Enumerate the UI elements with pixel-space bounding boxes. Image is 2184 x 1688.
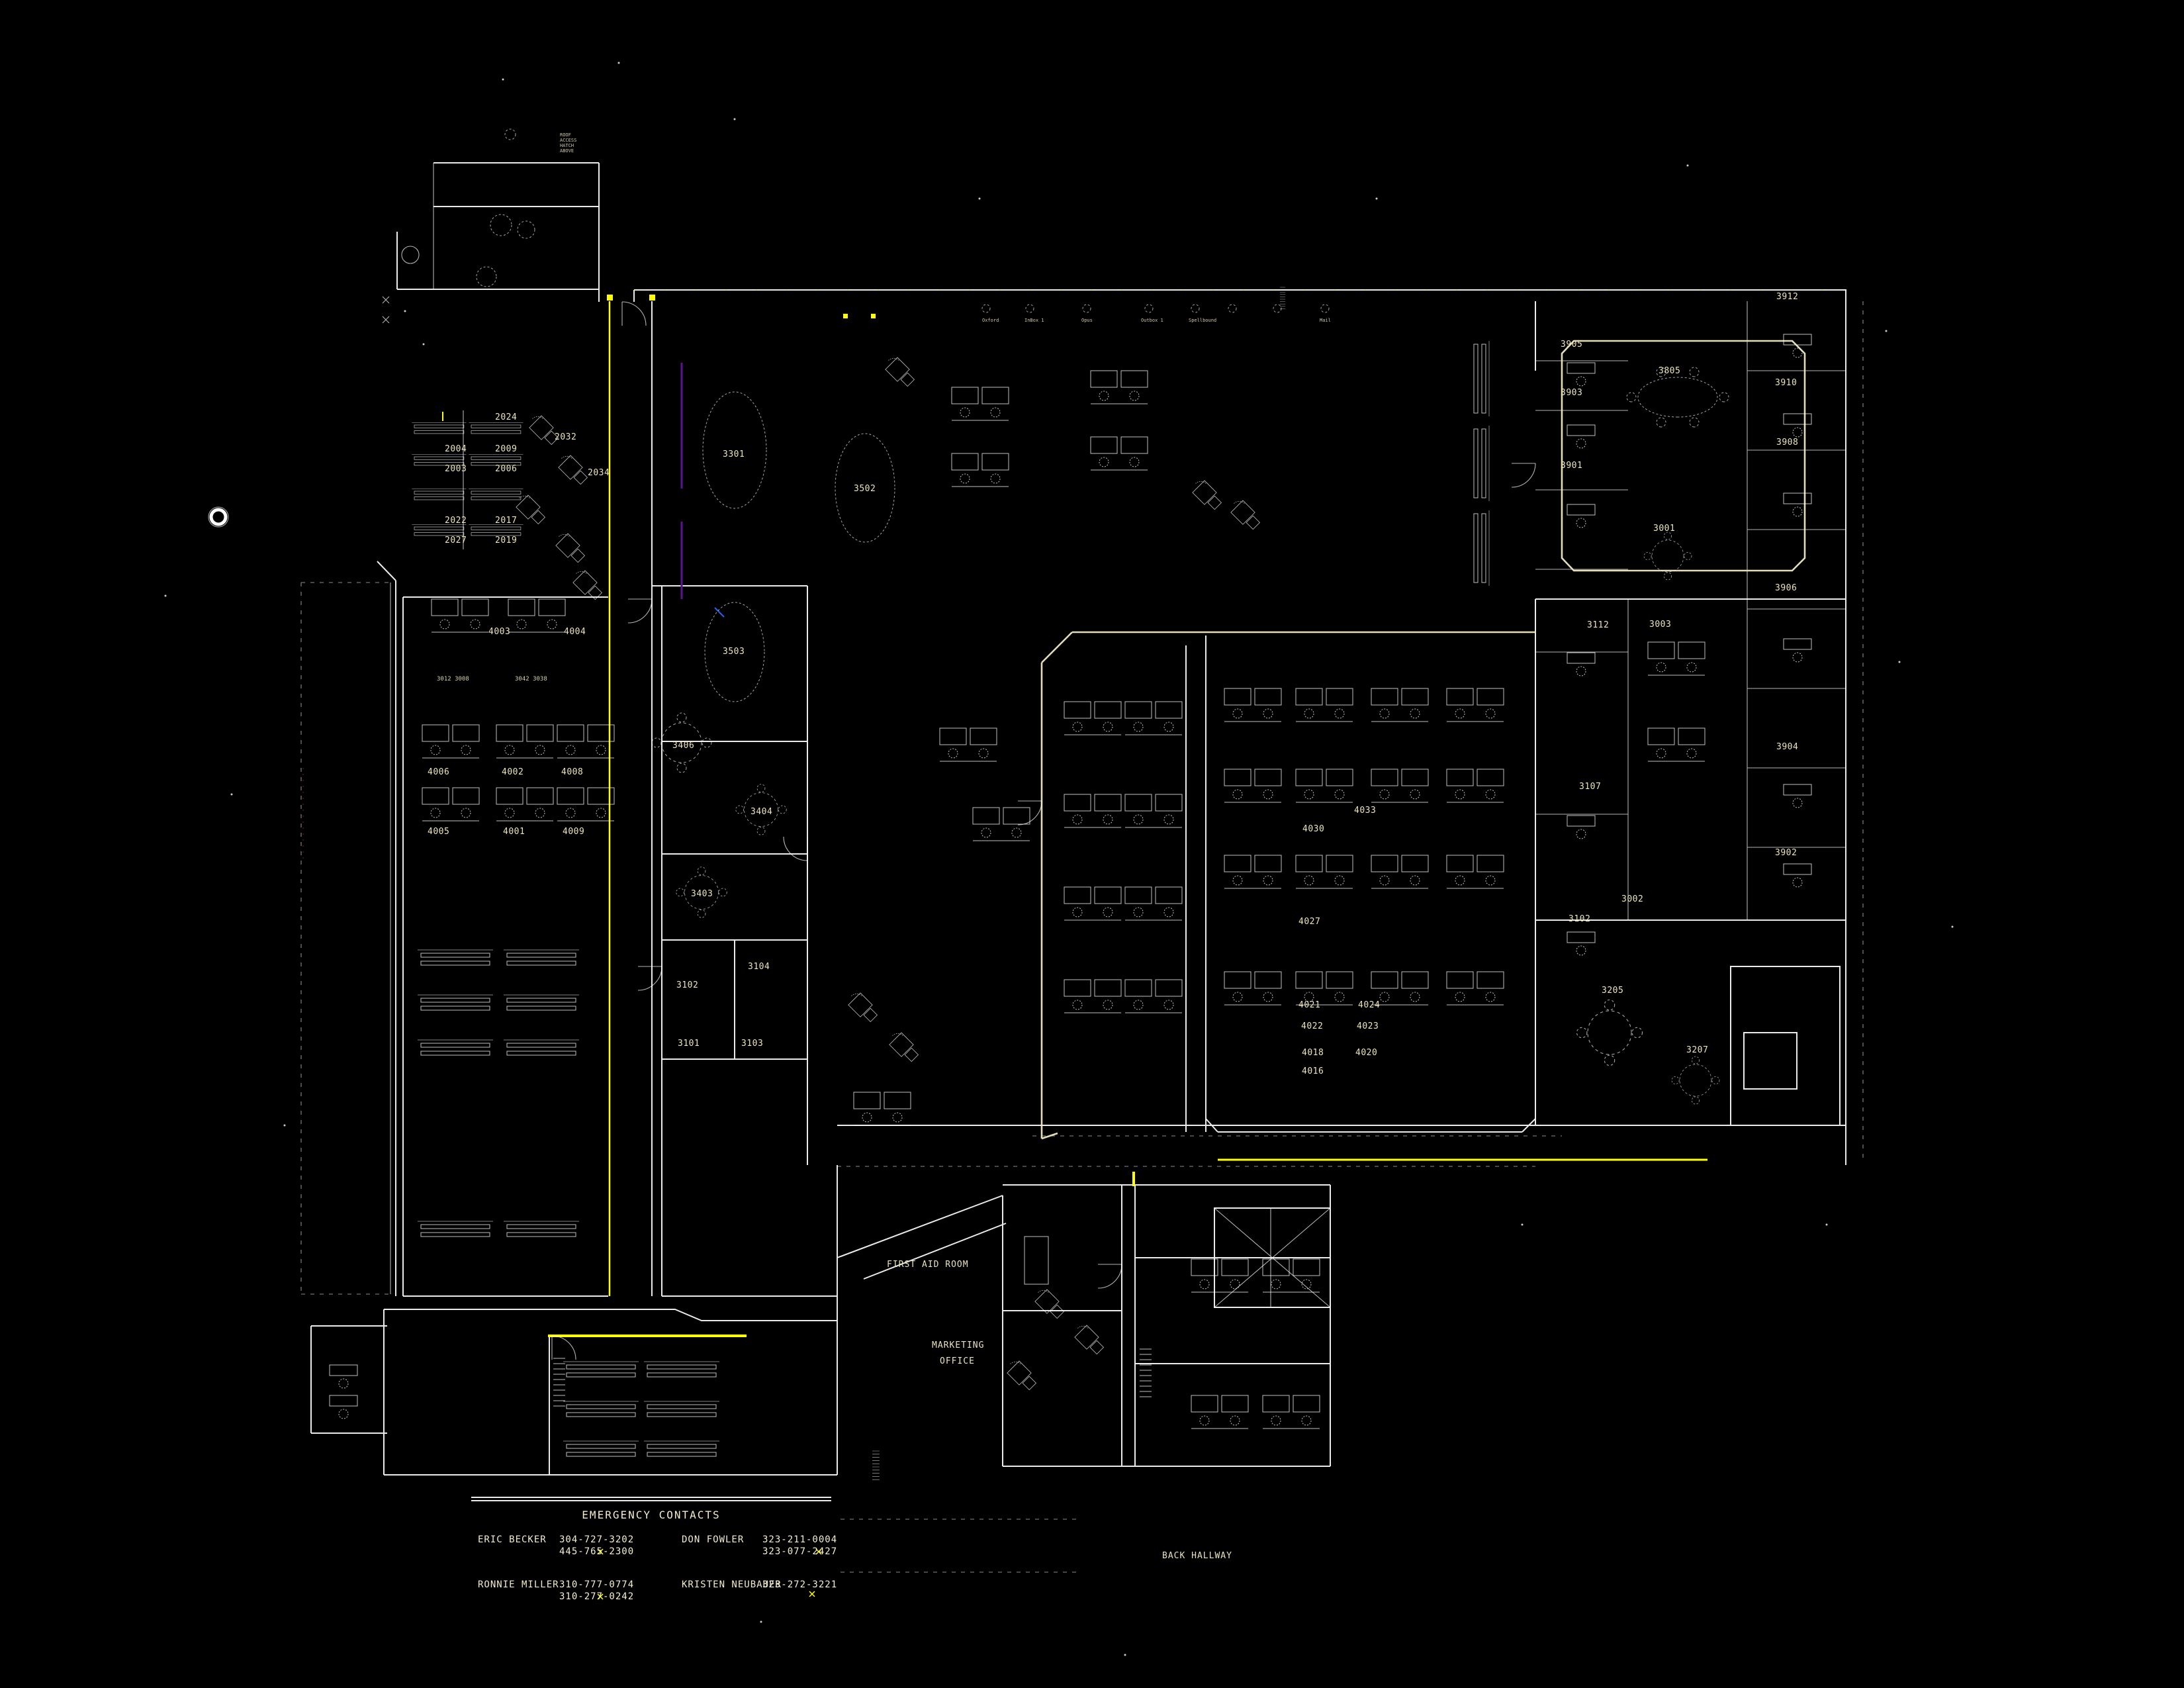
room-label: 3903 xyxy=(1561,388,1582,398)
contact-phone: 323-077-2427 xyxy=(762,1546,837,1557)
room-label: 3112 xyxy=(1587,620,1609,630)
room-label: 2032 xyxy=(555,432,576,442)
contact-name: DON FOWLER xyxy=(682,1534,744,1545)
room-label: 3102 xyxy=(676,980,698,990)
room-label: 3905 xyxy=(1561,340,1582,350)
room-label: 2022 xyxy=(445,516,467,526)
contact-phone: 323-272-3221 xyxy=(762,1579,837,1590)
room-label: 3902 xyxy=(1775,848,1797,858)
room-label: 2034 xyxy=(588,468,610,478)
area-label-marketing-2: OFFICE xyxy=(940,1356,975,1366)
keynote-line: ROOF xyxy=(560,132,571,138)
conference-name: Oxford xyxy=(982,318,999,323)
room-label: 4022 xyxy=(1301,1021,1323,1031)
room-label: 3404 xyxy=(751,807,772,817)
room-label: 3904 xyxy=(1776,742,1798,752)
room-label: 2024 xyxy=(495,412,517,422)
room-label: 3910 xyxy=(1775,378,1797,388)
room-label: 4001 xyxy=(503,827,525,837)
room-label: 4005 xyxy=(428,827,449,837)
conference-name: Outbox 1 xyxy=(1141,318,1163,323)
room-label: 4006 xyxy=(428,767,449,777)
room-label: 4003 xyxy=(488,627,510,637)
room-label: 3003 xyxy=(1649,620,1671,630)
room-label: 3205 xyxy=(1602,986,1623,996)
room-label: 3002 xyxy=(1621,894,1643,904)
room-label: 3104 xyxy=(748,962,770,972)
contacts-title: EMERGENCY CONTACTS xyxy=(582,1509,720,1521)
conference-name: Mail xyxy=(1320,318,1331,323)
drawing-background xyxy=(0,0,2184,1688)
room-label: 4024 xyxy=(1358,1000,1380,1010)
room-label: 3101 xyxy=(678,1039,700,1049)
room-label: 3908 xyxy=(1776,438,1798,447)
room-label: 4030 xyxy=(1302,824,1324,834)
room-label: 3102 xyxy=(1569,914,1590,924)
room-label: 4009 xyxy=(563,827,584,837)
room-label: 3107 xyxy=(1579,782,1601,792)
conference-name: Opus xyxy=(1081,318,1093,323)
room-label: 4008 xyxy=(561,767,583,777)
room-label: 3912 xyxy=(1776,292,1798,302)
room-label: 3502 xyxy=(854,484,876,494)
area-label-marketing-1: MARKETING xyxy=(932,1340,984,1350)
contact-name: ERIC BECKER xyxy=(478,1534,547,1545)
desk-label: 3012 3008 xyxy=(437,676,469,682)
room-label: 4002 xyxy=(502,767,523,777)
room-label: 2019 xyxy=(495,536,517,545)
room-label: 3001 xyxy=(1653,524,1675,534)
contact-phone: 310-777-0774 xyxy=(559,1579,634,1590)
floor-plan-canvas: 2004 2003 2022 2027 2024 2009 2006 2017 … xyxy=(0,0,2184,1688)
contact-phone: 445-765-2300 xyxy=(559,1546,634,1557)
room-label: 4004 xyxy=(564,627,586,637)
room-label: 3406 xyxy=(672,741,694,751)
room-label: 3805 xyxy=(1659,366,1680,376)
floor-plan-stage: 2004 2003 2022 2027 2024 2009 2006 2017 … xyxy=(0,0,2184,1688)
keynote-line: ACCESS xyxy=(560,138,576,143)
conference-name: Spellbound xyxy=(1189,318,1216,323)
room-label: 2027 xyxy=(445,536,467,545)
room-label: 3207 xyxy=(1686,1045,1708,1055)
room-label: 4027 xyxy=(1298,917,1320,927)
room-label: 4021 xyxy=(1298,1000,1320,1010)
conference-name: InBox 1 xyxy=(1024,318,1044,323)
room-label: 4018 xyxy=(1302,1048,1324,1058)
room-label: 4033 xyxy=(1354,806,1376,816)
room-label: 3103 xyxy=(741,1039,763,1049)
contact-phone: 323-211-0004 xyxy=(762,1534,837,1545)
room-label: 2003 xyxy=(445,464,467,474)
room-label: 4020 xyxy=(1355,1048,1377,1058)
room-label: 3503 xyxy=(723,647,745,657)
area-label-back-hallway: BACK HALLWAY xyxy=(1162,1551,1232,1561)
room-label: 4023 xyxy=(1357,1021,1379,1031)
room-label: 3403 xyxy=(691,889,713,899)
room-label: 4016 xyxy=(1302,1066,1324,1076)
contact-phone: 310-277-0242 xyxy=(559,1591,634,1602)
room-label: 2006 xyxy=(495,464,517,474)
room-label: 3301 xyxy=(723,449,745,459)
room-label: 2009 xyxy=(495,444,517,454)
room-label: 2017 xyxy=(495,516,517,526)
room-label: 3906 xyxy=(1775,583,1797,593)
contact-phone: 304-727-3202 xyxy=(559,1534,634,1545)
contact-name: RONNIE MILLER xyxy=(478,1579,559,1590)
room-label: 2004 xyxy=(445,444,467,454)
keynote-line: HATCH xyxy=(560,143,574,148)
desk-label: 3042 3038 xyxy=(515,676,547,682)
keynote-line: ABOVE xyxy=(560,148,574,154)
room-label: 3901 xyxy=(1561,461,1582,471)
area-label-first-aid: FIRST AID ROOM xyxy=(887,1260,969,1270)
